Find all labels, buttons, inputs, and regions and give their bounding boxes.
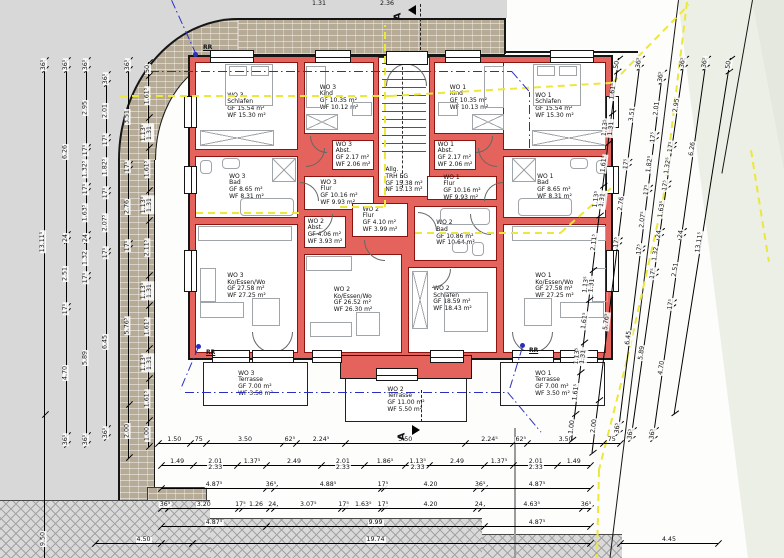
terrace-wo1-label: WO 1Terrasse GF 7.00 m²WF 3.50 m² <box>535 371 570 398</box>
dim-label: 1.63⁵ <box>82 204 88 223</box>
dim-label: 36⁵ <box>649 428 657 441</box>
toilet <box>472 242 484 256</box>
kerb-line <box>514 428 516 558</box>
utility-line-gas <box>196 212 304 214</box>
desk <box>352 102 372 116</box>
dim-chain-vL1: 36⁵13.11⁵9.50 <box>44 60 45 558</box>
dim-label: 4.88⁵ <box>319 482 338 488</box>
section-line-bottom <box>421 390 422 422</box>
room-wo3-abst: WO 3Abst.GF 2.17 m²WF 2.06 m² <box>332 140 374 170</box>
dim-label: 36⁵ <box>159 502 172 508</box>
dim-label: 1.49 <box>566 459 582 465</box>
table <box>524 298 552 326</box>
dim-label: 3.20 <box>196 502 212 508</box>
sofa <box>200 302 244 318</box>
dim-label: 2.24⁵ <box>480 437 499 443</box>
dim-label: 1.61⁵ <box>144 318 150 337</box>
dim-label: 1.63⁵ <box>658 200 667 219</box>
wardrobe <box>532 130 606 146</box>
dim-label: 4.87⁵ <box>205 520 224 526</box>
room-wo2-flur: WO 2FlurGF 4.10 m²WF 3.99 m² <box>352 203 408 237</box>
rainpipe-label-2: RR <box>206 349 215 356</box>
dim-label: 6.26 <box>689 141 697 158</box>
dim-label: 2.95 <box>83 100 89 116</box>
dim-label: 50 <box>614 59 621 70</box>
dim-label: 36⁵ <box>658 70 666 83</box>
dim-label: 1.37⁵ <box>490 459 509 465</box>
floor-plan-page: { "rooms": { "wo3_schlafen": {"unit":"WO… <box>0 0 784 558</box>
window-icon <box>184 96 197 128</box>
dim-label: 13.11⁵ <box>40 231 46 254</box>
dim-label: 17⁵ <box>613 236 621 249</box>
dim-label: 24 <box>656 229 664 240</box>
terrace-wo2-label: WO 2Terrasse GF 11.00 m²WF 5.50 m² <box>387 387 424 414</box>
dim-label: 36⁵ <box>103 427 109 440</box>
terrace-door <box>252 350 294 363</box>
dim-label: 17⁵ <box>103 187 109 200</box>
dim-label: 1.32⁵ <box>82 160 88 179</box>
dim-label: 1.37⁵ <box>243 459 262 465</box>
window-icon <box>430 350 464 363</box>
dim-label: 1.13⁵1.31 <box>582 275 597 295</box>
dim-label: 2.76 <box>618 195 626 212</box>
dim-label: 17⁵ <box>650 267 658 280</box>
sink <box>570 158 588 169</box>
dim-label: 2.00 <box>125 423 131 439</box>
dim-label: 62⁵ <box>284 437 297 443</box>
dim-label: 5.89 <box>83 350 89 366</box>
dim-label: 17⁵ <box>234 502 247 508</box>
dim-label: 1.32⁵ <box>664 157 673 176</box>
drain-line <box>185 392 508 393</box>
rainpipe-dot-1 <box>193 52 198 57</box>
dim-label: 4.63⁵ <box>522 502 541 508</box>
dim-chain-vL3: 36⁵2.9517⁵1.32⁵17⁵1.63⁵241.3217⁵5.8936⁵ <box>86 60 87 445</box>
drain-line <box>529 92 530 148</box>
dim-label: 17⁵ <box>636 243 644 256</box>
room-wo1-abst: WO 1Abst.GF 2.17 m²WF 2.06 m² <box>434 140 476 170</box>
road-strip-3 <box>482 534 622 558</box>
dim-label: 75 <box>607 437 617 443</box>
dim-label: 1.61⁵ <box>144 160 150 179</box>
site-parcel-gray-left <box>0 0 118 505</box>
dim-label: 6.26 <box>63 144 69 160</box>
rainpipe-label-1: RR <box>203 44 212 51</box>
dim-label: 75 <box>194 437 204 443</box>
dim-label: 2.49 <box>286 459 302 465</box>
dim-label: 3.51 <box>629 106 637 123</box>
window-icon <box>210 50 254 63</box>
dim-label: 17⁵ <box>83 272 89 285</box>
utility-line-gas <box>120 95 390 97</box>
terrace-door <box>376 368 418 381</box>
dim-label: 62⁵ <box>514 437 527 443</box>
dim-label: 1.13⁵1.31 <box>141 196 154 215</box>
dim-label: 2.012.33 <box>335 459 351 472</box>
window-icon <box>212 350 250 363</box>
top-dim-1: 1.31 <box>312 0 326 7</box>
dim-chain-hH: 4.45 <box>620 543 718 544</box>
dim-label: 4.87⁵ <box>528 520 547 526</box>
dim-label: 6.45 <box>625 330 633 347</box>
dim-label: 4.50 <box>135 537 151 543</box>
dim-label: 36⁵ <box>63 59 69 72</box>
dim-label: 2.95 <box>673 98 681 115</box>
dim-label: 36⁵ <box>474 482 487 488</box>
dim-label: 2.00 <box>590 418 598 435</box>
dim-label: 2.49 <box>449 459 465 465</box>
section-marker-bottom: A <box>398 424 406 443</box>
utility-line-gas <box>384 25 386 207</box>
window-icon <box>550 50 594 63</box>
pillow <box>559 66 577 76</box>
dim-label: 2.012.33 <box>207 459 223 472</box>
terrace-wo2: WO 2Terrasse GF 11.00 m²WF 5.50 m² <box>345 378 467 422</box>
desk <box>438 102 458 116</box>
dim-label: 36⁵ <box>580 502 593 508</box>
dim-chain-hD: 36⁵3.2017⁵1.26243.07⁵17⁵1.63⁵17⁵4.20244.… <box>161 508 590 509</box>
dim-chain-hA: 1.50753.5062⁵2.24⁵5.502.24⁵62⁵3.5075 <box>158 443 620 444</box>
dim-chain-hC: 4.87⁵36⁵4.88⁵17⁵4.2036⁵4.87⁵ <box>161 488 590 489</box>
drain-line <box>150 71 512 72</box>
utility-line-gas <box>415 232 561 234</box>
dim-label: 9.99 <box>367 520 383 526</box>
dim-label: 1.13⁵2.33 <box>408 459 427 472</box>
dim-label: 2.07⁵ <box>639 211 648 230</box>
kitchen-counter <box>198 226 292 241</box>
dim-label: 17⁵ <box>377 482 390 488</box>
dim-label: 1.26 <box>248 502 264 508</box>
dim-label: 1.13⁵1.31 <box>141 281 154 300</box>
dim-label: 36⁵ <box>125 59 131 72</box>
shower <box>512 158 536 182</box>
rainpipe-label-3: RR <box>529 347 538 354</box>
dim-label: 1.82⁵ <box>646 154 655 173</box>
dim-label: 36⁵ <box>83 434 89 447</box>
dim-label: 3.07⁵ <box>299 502 318 508</box>
dim-label: 4.87⁵ <box>205 482 224 488</box>
dim-label: 1.32 <box>652 246 660 263</box>
dim-label: 19.74 <box>365 537 385 543</box>
dim-label: 36⁵ <box>103 73 109 86</box>
dim-label: 1.13⁵1.31 <box>573 347 588 367</box>
dim-label: 17⁵ <box>125 240 131 253</box>
dim-label: 2.24⁵ <box>312 437 331 443</box>
dim-label: 17⁵ <box>644 184 652 197</box>
top-dim-2: 2.36 <box>380 0 394 7</box>
dim-chain-hB: 1.492.012.331.37⁵2.492.012.331.86⁵1.13⁵2… <box>161 465 590 466</box>
dim-label: 4.70 <box>658 360 666 377</box>
dim-label: 1.13⁵1.31 <box>593 190 608 210</box>
dim-label: 17⁵ <box>662 179 670 192</box>
dim-label: 17⁵ <box>63 303 69 316</box>
dim-chain-vL5: 36⁵3.5117⁵2.7617⁵5.76⁵2.00 <box>128 60 129 458</box>
dim-label: 1.49 <box>169 459 185 465</box>
dim-label: 1.63⁵ <box>354 502 373 508</box>
dim-label: 17⁵ <box>337 502 350 508</box>
dim-label: 36⁵ <box>636 56 644 69</box>
window-icon <box>315 50 351 63</box>
dim-label: 17⁵ <box>83 143 89 156</box>
dim-chain-vL4: 36⁵2.0117⁵1.82⁵17⁵2.07⁵17⁵6.4536⁵ <box>106 74 107 438</box>
window-icon <box>445 50 481 63</box>
bed <box>444 292 488 332</box>
dim-label: 1.13⁵1.31 <box>141 354 154 373</box>
dim-label: 6.45 <box>103 334 109 350</box>
dim-label: 2.01 <box>653 100 661 117</box>
kitchen-counter <box>306 256 352 271</box>
dim-label: 13.11⁵ <box>695 231 705 254</box>
dim-chain-vL2: 36⁵6.26242.5117⁵4.7036⁵ <box>66 60 67 445</box>
dim-label: 36⁵ <box>679 56 687 69</box>
dim-label: 17⁵ <box>650 131 658 144</box>
table <box>356 312 380 336</box>
dim-label: 1.86⁵ <box>376 459 395 465</box>
entrance-door <box>386 51 428 65</box>
dim-label: 9.50 <box>41 531 47 547</box>
dim-label: 24 <box>63 233 69 243</box>
dim-label: 2.012.33 <box>528 459 544 472</box>
dim-label: 1.50 <box>166 437 182 443</box>
dim-label: 4.20 <box>422 482 438 488</box>
dim-label: 4.87⁵ <box>528 482 547 488</box>
dim-label: 2.76 <box>125 198 131 214</box>
dim-label: 1.13⁵1.31 <box>602 118 617 138</box>
dim-label: 24 <box>83 233 89 243</box>
pillow <box>537 66 555 76</box>
dim-label: 36⁵ <box>41 59 47 72</box>
road-strip-2 <box>210 518 482 558</box>
dim-label: 17⁵ <box>83 183 89 196</box>
dim-label: 1.13⁵1.31 <box>141 123 154 142</box>
wardrobe <box>306 114 338 130</box>
dim-label: 2.01 <box>103 103 109 119</box>
dim-label: 36⁵ <box>614 422 622 435</box>
dim-label: 1.61⁵ <box>144 87 150 106</box>
dim-label: 4.70 <box>63 365 69 381</box>
dim-label: 50 <box>145 64 151 74</box>
sofa <box>310 322 352 337</box>
dim-label: 5.76⁵ <box>124 317 130 336</box>
dim-label: 17⁵ <box>125 161 131 174</box>
dim-label: 36⁵ <box>63 434 69 447</box>
bathtub <box>440 208 490 225</box>
dim-label: 24 <box>678 229 686 240</box>
dim-label: 36⁵ <box>265 482 278 488</box>
dim-label: 4.45 <box>661 537 677 543</box>
rainpipe-dot-2 <box>196 344 201 349</box>
window-icon <box>312 350 342 363</box>
dim-label: 2.11⁵ <box>144 239 150 258</box>
edge-cap-line <box>504 18 506 54</box>
dim-chain-hG: 19.74 <box>161 543 590 544</box>
dim-label: 17⁵ <box>623 157 631 170</box>
utility-line-gas <box>340 206 386 208</box>
dim-label: 17⁵ <box>667 298 675 311</box>
dim-label: 2.07⁵ <box>102 214 108 233</box>
dim-label: 36⁵ <box>83 59 89 72</box>
dim-chain-hE: 4.87⁵9.994.87⁵ <box>161 526 590 527</box>
dim-label: 3.50 <box>237 437 253 443</box>
dim-label: 2.51 <box>672 261 680 278</box>
terrace-wo3: WO 3Terrasse GF 7.00 m²WF 3.50 m² <box>203 362 308 406</box>
rainpipe-dot-3 <box>520 343 525 348</box>
wardrobe <box>200 130 274 146</box>
dim-label: 5.89 <box>638 344 646 361</box>
sink <box>222 158 240 169</box>
table <box>252 298 280 326</box>
dim-label: 1.32 <box>83 250 89 266</box>
wardrobe <box>472 114 504 130</box>
dim-label: 1.00 <box>145 426 151 442</box>
dim-label: 24 <box>474 502 484 508</box>
dim-chain-vL6: 501.61⁵1.13⁵1.311.61⁵1.13⁵1.312.11⁵1.13⁵… <box>148 62 149 447</box>
window-icon <box>184 166 197 194</box>
dim-label: 17⁵ <box>103 247 109 260</box>
dim-label: 4.20 <box>422 502 438 508</box>
dim-label: 17⁵ <box>103 134 109 147</box>
dim-label: 17⁵ <box>668 140 676 153</box>
stair-walk-line <box>402 62 403 188</box>
dim-label: 17⁵ <box>377 502 390 508</box>
section-line-top <box>420 4 421 50</box>
sink <box>452 242 468 253</box>
dim-label: 2.51 <box>63 266 69 282</box>
dim-label: 1.00 <box>568 419 576 436</box>
terrace-wo3-label: WO 3Terrasse GF 7.00 m²WF 3.50 m² <box>238 371 273 398</box>
bathtub <box>518 198 572 216</box>
dim-label: 36⁵ <box>627 428 635 441</box>
window-icon <box>184 250 197 292</box>
dim-label: 24 <box>267 502 277 508</box>
shower <box>272 158 296 182</box>
dim-label: 1.82⁵ <box>102 157 108 176</box>
sofa <box>200 268 216 302</box>
wardrobe <box>412 271 428 329</box>
dim-label: 1.61⁵ <box>144 390 150 409</box>
dim-label: 3.51 <box>125 109 131 125</box>
toilet <box>200 160 212 174</box>
section-marker-top: A <box>394 4 402 23</box>
